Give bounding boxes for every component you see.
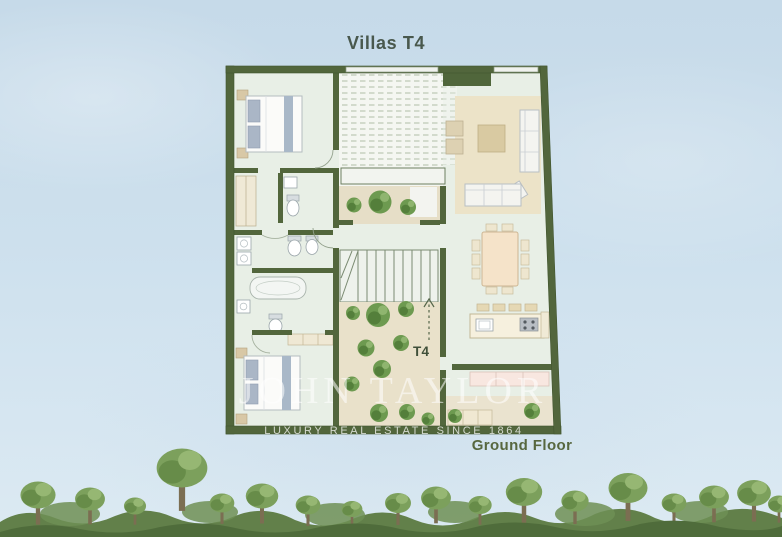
toilet (287, 200, 299, 216)
window (346, 67, 438, 72)
watermark-tagline: LUXURY REAL ESTATE SINCE 1864 (264, 425, 523, 437)
floor-label: Ground Floor (452, 437, 592, 454)
villa-floorplan-page: { "title": "Villas T4", "plan": { "unit_… (0, 0, 782, 537)
nightstand (236, 414, 247, 424)
sofa-right (520, 110, 539, 172)
armchair (446, 121, 463, 136)
unit-label: T4 (413, 344, 453, 359)
forest-strip (0, 449, 782, 537)
double-bed (246, 96, 302, 152)
staircase (340, 250, 438, 302)
bathtub (250, 277, 306, 299)
toilet (288, 240, 301, 256)
armchair (446, 139, 463, 154)
watermark-brand: JOHN TAYLOR (239, 369, 548, 413)
closet (288, 334, 333, 345)
dining-table (482, 232, 518, 286)
bidet (306, 240, 318, 255)
coffee-table (478, 125, 505, 152)
page-title: Villas T4 (246, 33, 526, 54)
cooktop (520, 318, 538, 331)
sink (237, 252, 251, 265)
kitchen-counter (541, 312, 549, 338)
sofa-bottom (465, 184, 521, 206)
sink (237, 237, 251, 250)
washbasin (284, 177, 297, 188)
window (494, 67, 538, 72)
deck-terrace (339, 73, 457, 186)
scene-graphic (0, 0, 782, 537)
sideboard (443, 73, 491, 86)
upper-courtyard (339, 186, 440, 224)
sink (237, 300, 250, 313)
forest-trees (20, 449, 782, 527)
